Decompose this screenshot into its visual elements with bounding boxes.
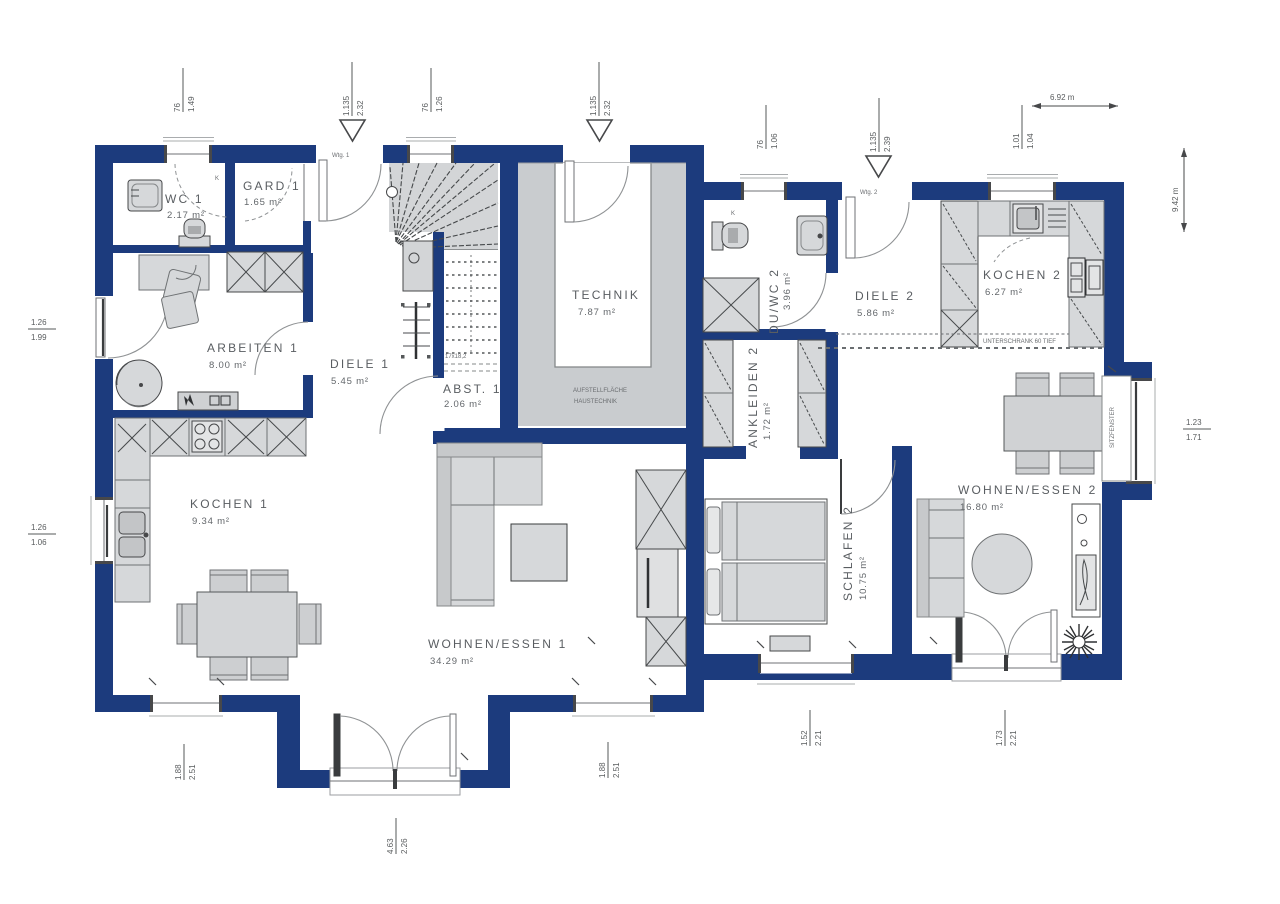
svg-text:ABST. 1: ABST. 1 [443,382,502,396]
svg-text:SCHLAFEN 2: SCHLAFEN 2 [841,505,855,601]
svg-text:Wtg. 1: Wtg. 1 [332,153,350,159]
svg-text:K: K [215,176,219,182]
svg-text:ARBEITEN 1: ARBEITEN 1 [207,341,299,355]
svg-text:2.39: 2.39 [883,136,892,152]
svg-text:KOCHEN 1: KOCHEN 1 [190,497,269,511]
svg-text:2.51: 2.51 [188,764,197,780]
svg-text:1.99: 1.99 [31,333,47,342]
svg-text:1.01: 1.01 [1012,133,1021,149]
svg-text:UNTERSCHRANK 60 TIEF: UNTERSCHRANK 60 TIEF [983,339,1056,345]
svg-text:2.21: 2.21 [814,730,823,746]
svg-text:AUFSTELLFLÄCHE: AUFSTELLFLÄCHE [573,387,627,394]
svg-text:76: 76 [173,103,182,112]
svg-text:2.32: 2.32 [356,100,365,116]
svg-text:1.73: 1.73 [995,730,1004,746]
svg-text:3.96 m²: 3.96 m² [782,272,793,310]
svg-text:1.49: 1.49 [187,96,196,112]
svg-text:1.72 m²: 1.72 m² [762,402,773,440]
svg-text:7.87 m²: 7.87 m² [578,307,616,318]
svg-text:8.00 m²: 8.00 m² [209,360,247,371]
svg-text:1.06: 1.06 [31,538,47,547]
svg-text:6.27 m²: 6.27 m² [985,287,1023,298]
svg-text:9.42 m: 9.42 m [1171,187,1180,212]
svg-text:5.86 m²: 5.86 m² [857,308,895,319]
svg-text:1.23: 1.23 [1186,418,1202,427]
svg-text:76: 76 [421,103,430,112]
svg-text:ANKLEIDEN 2: ANKLEIDEN 2 [746,346,760,448]
svg-text:Wtg. 2: Wtg. 2 [860,190,878,196]
svg-text:2.06 m²: 2.06 m² [444,399,482,410]
svg-text:SITZFENSTER: SITZFENSTER [1110,406,1116,448]
svg-text:2.32: 2.32 [603,100,612,116]
svg-text:DIELE 2: DIELE 2 [855,289,915,303]
svg-text:1.71: 1.71 [1186,433,1202,442]
svg-text:DU/WC 2: DU/WC 2 [767,268,781,334]
svg-text:WC 1: WC 1 [165,192,204,206]
svg-text:1.65 m²: 1.65 m² [244,197,282,208]
svg-text:6.92 m: 6.92 m [1050,93,1075,102]
svg-text:1.52: 1.52 [800,730,809,746]
svg-text:16.80 m²: 16.80 m² [960,502,1004,513]
svg-text:DIELE 1: DIELE 1 [330,357,390,371]
svg-text:2.21: 2.21 [1009,730,1018,746]
svg-text:KOCHEN 2: KOCHEN 2 [983,268,1062,282]
svg-text:2.51: 2.51 [612,762,621,778]
svg-text:1.06: 1.06 [770,133,779,149]
svg-text:5.45 m²: 5.45 m² [331,376,369,387]
svg-text:HAUSTECHNIK: HAUSTECHNIK [574,399,617,405]
svg-text:1.88: 1.88 [598,762,607,778]
svg-text:1.04: 1.04 [1026,133,1035,149]
svg-text:1.135: 1.135 [869,131,878,152]
svg-text:1.26: 1.26 [31,318,47,327]
svg-text:2.17 m²: 2.17 m² [167,210,205,221]
svg-text:9.34 m²: 9.34 m² [192,516,230,527]
svg-text:1.135: 1.135 [342,95,351,116]
svg-text:10.75 m²: 10.75 m² [858,556,869,600]
svg-text:GARD 1: GARD 1 [243,179,301,193]
svg-text:1.88: 1.88 [174,764,183,780]
svg-text:17x18,2: 17x18,2 [445,354,467,360]
svg-text:2.26: 2.26 [400,838,409,854]
svg-text:4.63: 4.63 [386,838,395,854]
svg-text:K: K [731,211,735,217]
svg-text:34.29 m²: 34.29 m² [430,656,474,667]
svg-text:TECHNIK: TECHNIK [572,288,640,302]
svg-text:76: 76 [756,140,765,149]
svg-text:WOHNEN/ESSEN 1: WOHNEN/ESSEN 1 [428,637,568,651]
svg-text:1.26: 1.26 [435,96,444,112]
svg-text:WOHNEN/ESSEN 2: WOHNEN/ESSEN 2 [958,483,1098,497]
svg-text:1.26: 1.26 [31,523,47,532]
svg-text:1.135: 1.135 [589,95,598,116]
